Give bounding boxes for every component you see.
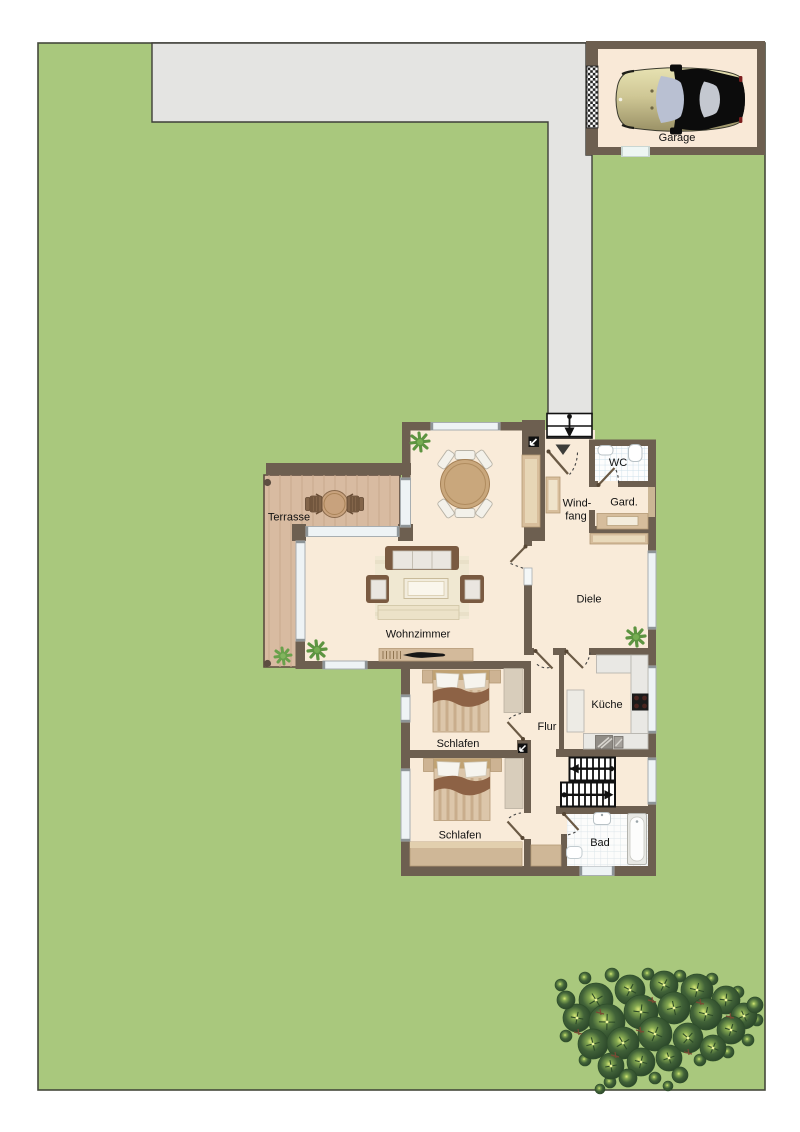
svg-text:Gard.: Gard. xyxy=(610,497,638,509)
svg-text:Bad: Bad xyxy=(590,837,610,849)
svg-text:fang: fang xyxy=(565,511,586,523)
svg-text:Flur: Flur xyxy=(538,721,557,733)
svg-text:Schlafen: Schlafen xyxy=(439,830,482,842)
svg-text:Terrasse: Terrasse xyxy=(268,512,310,524)
svg-text:Wind-: Wind- xyxy=(563,498,592,510)
svg-text:Küche: Küche xyxy=(591,699,622,711)
svg-text:Wohnzimmer: Wohnzimmer xyxy=(386,629,451,641)
svg-text:Diele: Diele xyxy=(576,594,601,606)
svg-text:Schlafen: Schlafen xyxy=(437,738,480,750)
svg-text:Garage: Garage xyxy=(659,132,696,144)
svg-text:WC: WC xyxy=(609,457,627,469)
